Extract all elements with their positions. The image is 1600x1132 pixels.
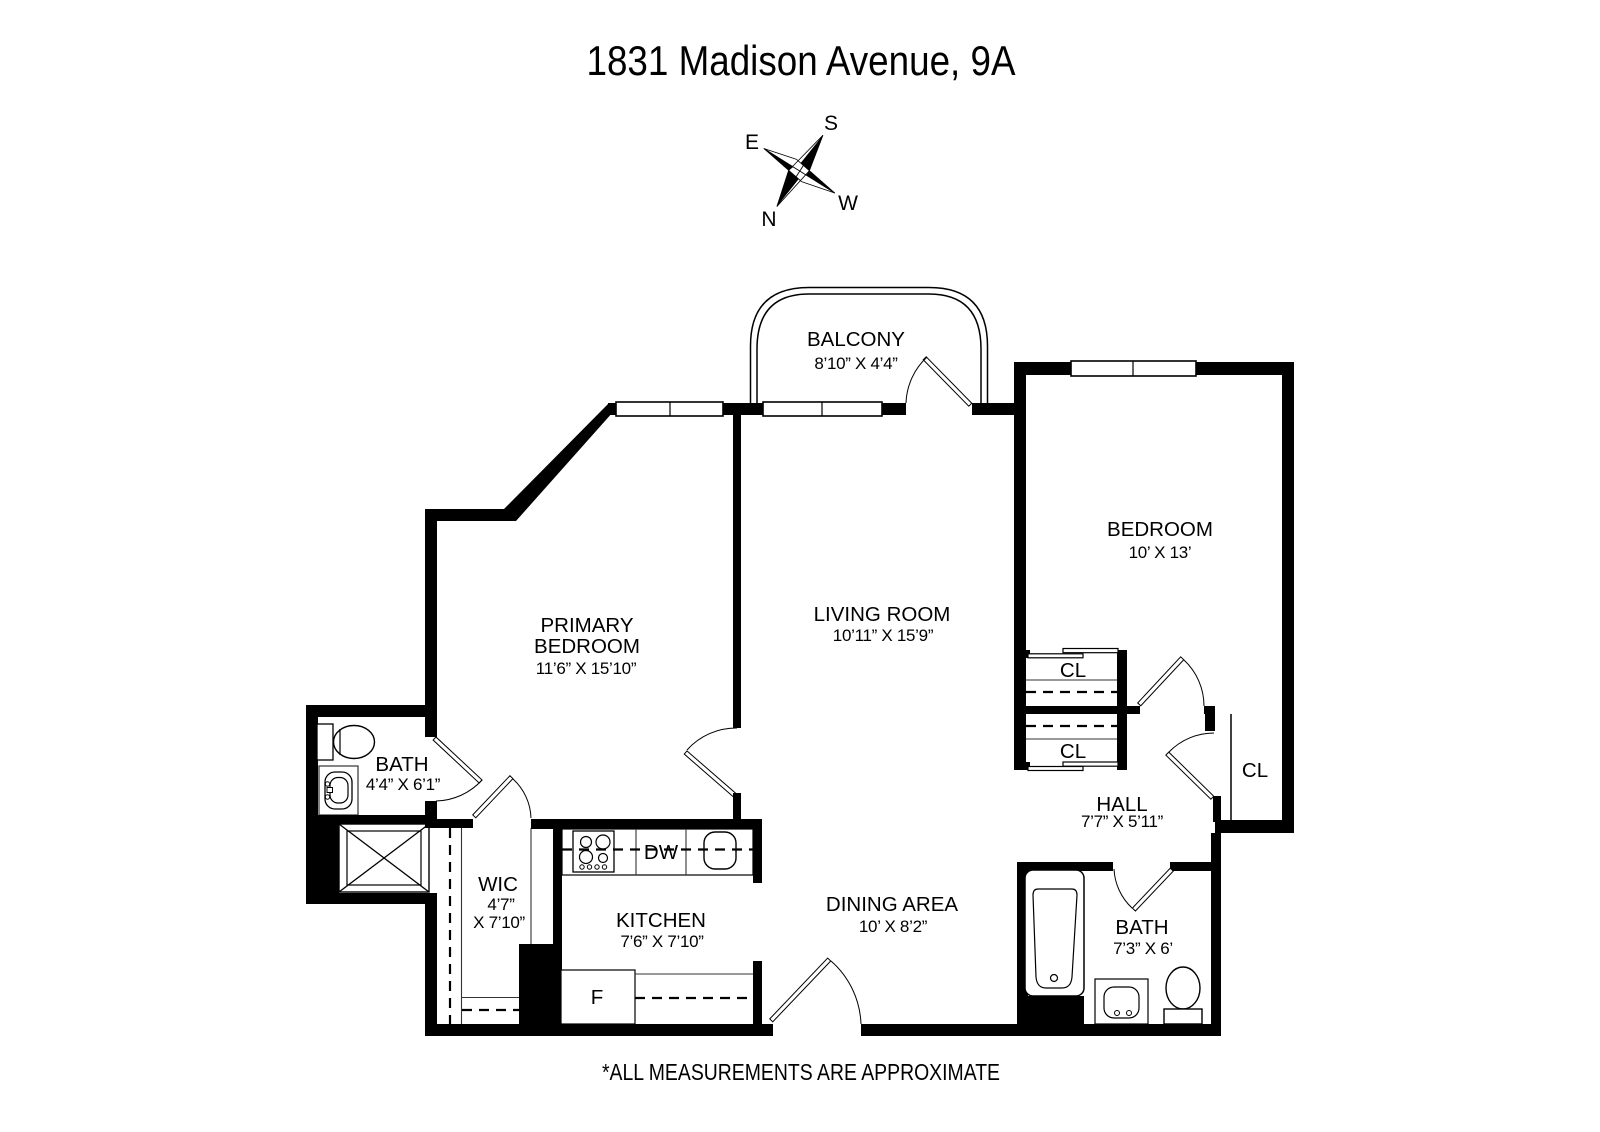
svg-text:1831 Madison Avenue, 9A: 1831 Madison Avenue, 9A: [587, 37, 1016, 84]
svg-text:N: N: [761, 208, 776, 231]
svg-text:10’11” X 15’9”: 10’11” X 15’9”: [833, 626, 934, 645]
svg-text:8’10” X 4’4”: 8’10” X 4’4”: [814, 354, 898, 373]
svg-text:KITCHEN: KITCHEN: [616, 909, 706, 932]
svg-text:4’7”: 4’7”: [487, 895, 515, 914]
svg-text:DINING AREA: DINING AREA: [826, 893, 958, 916]
svg-text:7’6” X 7’10”: 7’6” X 7’10”: [620, 932, 704, 951]
svg-text:10’ X 8’2”: 10’ X 8’2”: [859, 917, 928, 936]
svg-text:CL: CL: [1242, 759, 1268, 782]
svg-text:BEDROOM: BEDROOM: [1107, 518, 1213, 541]
svg-text:CL: CL: [1060, 659, 1086, 682]
svg-text:DW: DW: [644, 841, 679, 864]
svg-text:BATH: BATH: [1115, 916, 1168, 939]
svg-text:BATH: BATH: [375, 753, 428, 776]
svg-text:LIVING ROOM: LIVING ROOM: [814, 603, 951, 626]
svg-text:W: W: [838, 192, 858, 215]
svg-text:F: F: [591, 986, 604, 1009]
svg-text:CL: CL: [1060, 740, 1086, 763]
svg-text:7’7” X 5’11”: 7’7” X 5’11”: [1081, 812, 1164, 831]
svg-text:S: S: [824, 112, 838, 135]
svg-text:7’3” X 6’: 7’3” X 6’: [1113, 939, 1173, 958]
svg-text:*ALL MEASUREMENTS ARE APPROXIM: *ALL MEASUREMENTS ARE APPROXIMATE: [602, 1059, 1000, 1085]
svg-text:X 7’10”: X 7’10”: [473, 913, 525, 932]
svg-text:10’ X 13’: 10’ X 13’: [1129, 543, 1192, 562]
svg-text:BEDROOM: BEDROOM: [534, 635, 640, 658]
svg-text:WIC: WIC: [478, 873, 518, 896]
svg-text:11’6” X 15’10”: 11’6” X 15’10”: [536, 659, 637, 678]
svg-text:4’4” X 6’1”: 4’4” X 6’1”: [366, 775, 441, 794]
svg-text:E: E: [745, 131, 759, 154]
svg-text:PRIMARY: PRIMARY: [540, 614, 633, 637]
svg-text:BALCONY: BALCONY: [807, 328, 905, 351]
